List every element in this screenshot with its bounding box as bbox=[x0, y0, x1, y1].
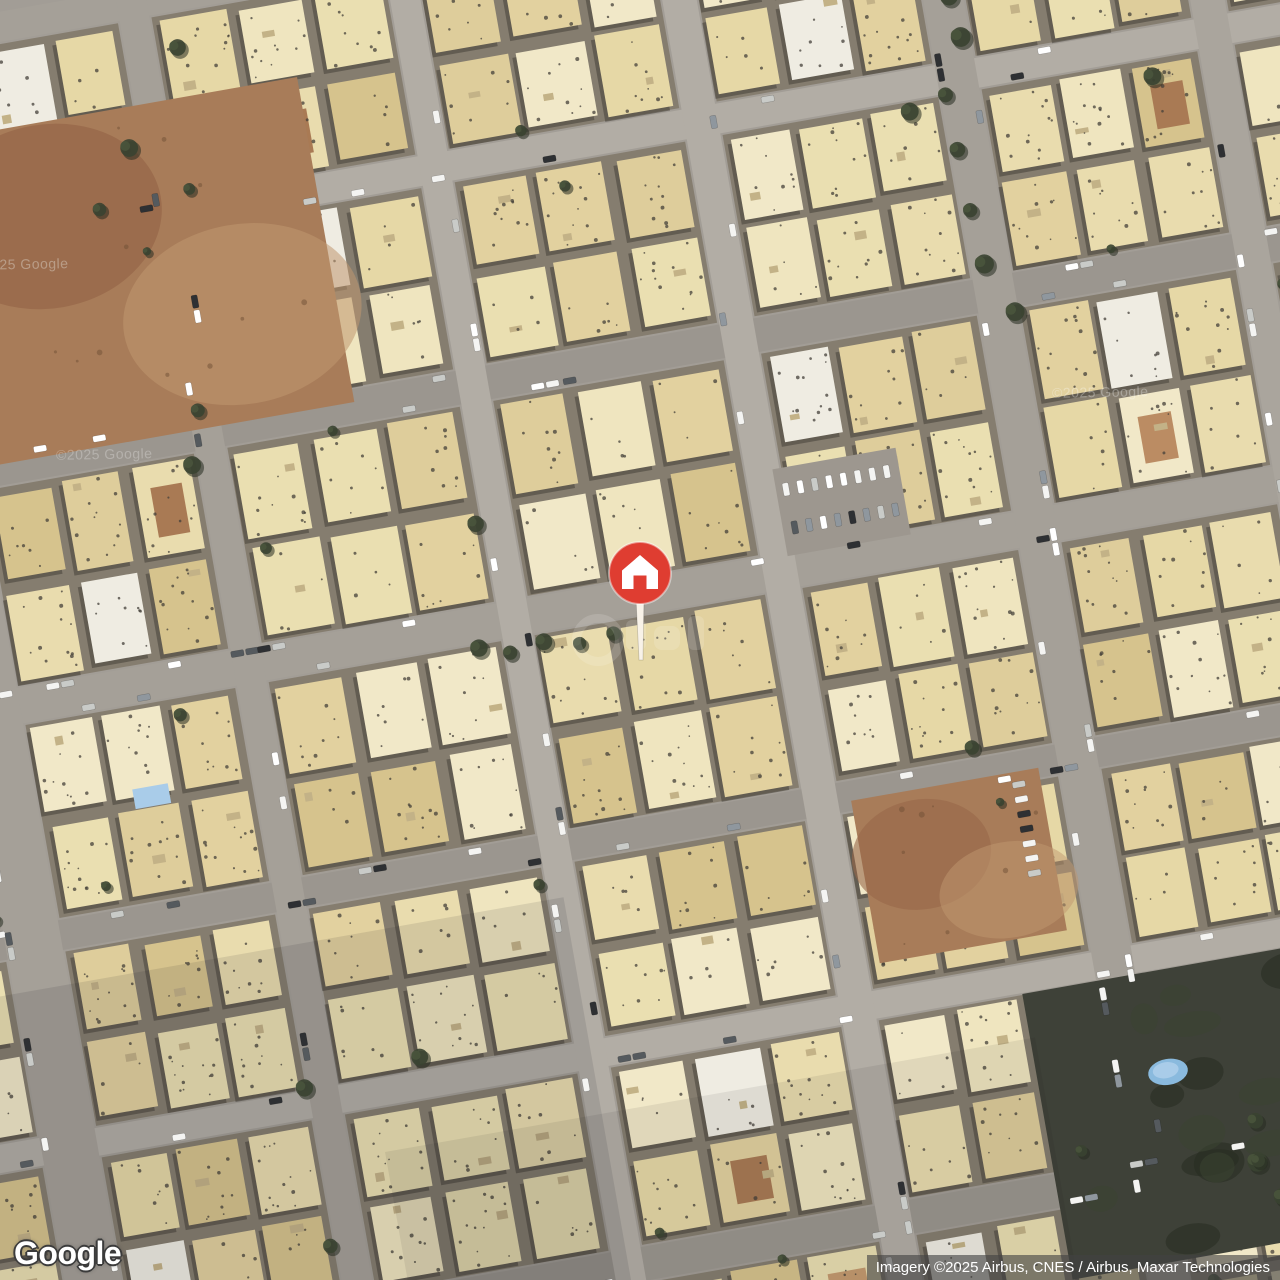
place-marker-pin[interactable] bbox=[600, 533, 680, 673]
attribution-bar: Imagery ©2025 Airbus, CNES / Airbus, Max… bbox=[867, 1255, 1280, 1280]
attribution-text: Imagery ©2025 Airbus, CNES / Airbus, Max… bbox=[876, 1259, 1270, 1276]
pin-stem bbox=[636, 599, 644, 660]
google-logo[interactable]: Google bbox=[14, 1235, 121, 1272]
satellite-map-canvas[interactable]: ©2025 Google ©2025 Google ©2025 Google G… bbox=[0, 0, 1280, 1280]
